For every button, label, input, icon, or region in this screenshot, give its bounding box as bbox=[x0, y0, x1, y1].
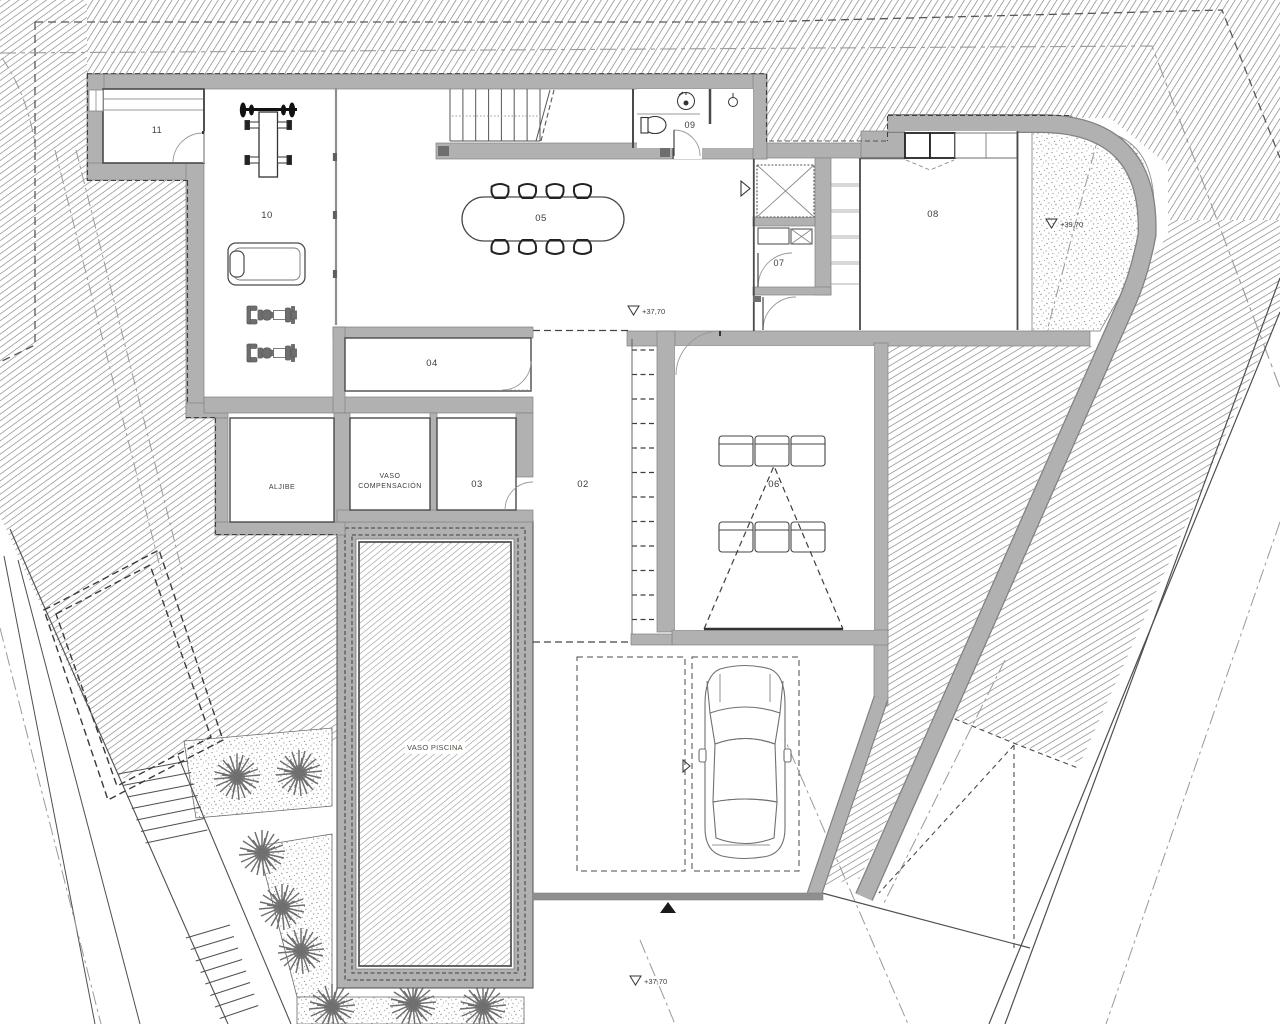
svg-text:VASO PISCINA: VASO PISCINA bbox=[407, 743, 463, 752]
svg-text:COMPENSACIÓN: COMPENSACIÓN bbox=[358, 481, 422, 490]
svg-text:04: 04 bbox=[426, 358, 438, 369]
svg-text:07: 07 bbox=[773, 258, 784, 268]
svg-text:02: 02 bbox=[577, 479, 589, 490]
svg-text:VASO: VASO bbox=[380, 473, 401, 480]
svg-text:03: 03 bbox=[471, 479, 483, 490]
svg-text:+37,70: +37,70 bbox=[642, 307, 665, 316]
svg-text:ALJIBE: ALJIBE bbox=[269, 484, 295, 491]
svg-text:06: 06 bbox=[768, 479, 780, 490]
svg-text:10: 10 bbox=[261, 210, 273, 221]
svg-text:08: 08 bbox=[927, 209, 939, 220]
svg-text:05: 05 bbox=[535, 213, 547, 224]
svg-text:09: 09 bbox=[684, 120, 695, 130]
svg-text:11: 11 bbox=[152, 125, 162, 135]
svg-text:+39,70: +39,70 bbox=[1060, 220, 1083, 229]
svg-text:+37,70: +37,70 bbox=[644, 977, 667, 986]
